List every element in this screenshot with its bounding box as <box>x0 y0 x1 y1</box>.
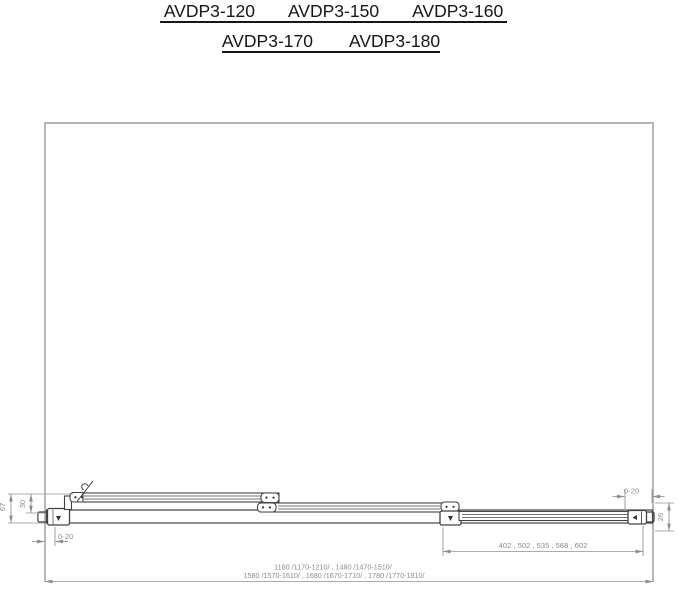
right-end-box <box>628 511 647 525</box>
dimension-26: 26 <box>655 503 674 531</box>
dimension-30: 30 <box>18 494 31 513</box>
dimension-overall-width: 1180 /1170-1210/ , 1480 /1470-1510/ 1580… <box>45 563 653 582</box>
dimension-left-0-20: 0-20 <box>32 527 73 546</box>
dim-label-overall-2: 1580 /1570-1610/ , 1680 /1670-1710/ , 17… <box>243 571 424 580</box>
dim-label-30: 30 <box>18 500 27 508</box>
dimension-drawing: 67 30 0-20 0-20 26 <box>0 0 679 590</box>
panel2-end-roller <box>441 502 459 512</box>
panel2-start-roller <box>258 503 277 512</box>
dim-label-right-gap: 0-20 <box>624 487 639 496</box>
section-panel-1 <box>83 493 279 503</box>
section-panel-2 <box>258 502 460 512</box>
dim-label-fixed-widths: 402 , 502 , 535 , 568 , 602 <box>499 541 588 550</box>
dim-label-left-gap: 0-20 <box>58 532 73 541</box>
dim-label-67: 67 <box>0 503 7 511</box>
technical-drawing-page: AVDP3-120 AVDP3-150 AVDP3-160 AVDP3-170 … <box>0 0 679 590</box>
dimension-fixed-widths: 402 , 502 , 535 , 568 , 602 <box>443 526 643 557</box>
panel1-end-roller <box>261 493 279 503</box>
dim-label-26: 26 <box>656 513 665 521</box>
dimension-right-0-20: 0-20 <box>613 487 665 512</box>
